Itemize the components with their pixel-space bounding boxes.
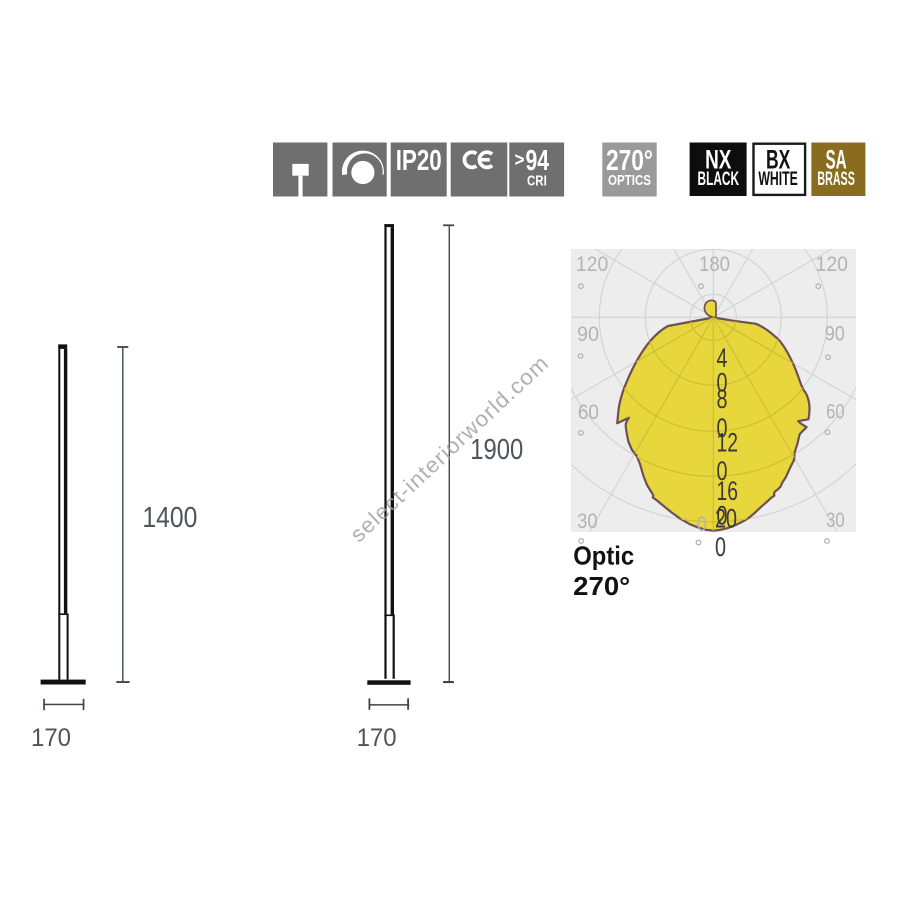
svg-text:CRI: CRI bbox=[527, 172, 547, 189]
svg-text:BRASS: BRASS bbox=[817, 168, 855, 190]
svg-text:1400: 1400 bbox=[142, 502, 197, 534]
svg-text:90: 90 bbox=[825, 323, 845, 346]
svg-text:20: 20 bbox=[715, 504, 737, 534]
svg-text:OPTICS: OPTICS bbox=[608, 173, 651, 189]
svg-text:270°: 270° bbox=[573, 571, 630, 601]
svg-text:120: 120 bbox=[816, 253, 849, 276]
svg-text:BLACK: BLACK bbox=[698, 168, 740, 190]
svg-text:170: 170 bbox=[31, 724, 71, 752]
svg-text:60: 60 bbox=[826, 401, 845, 424]
svg-text:Optic: Optic bbox=[573, 541, 634, 571]
svg-text:>: > bbox=[515, 150, 525, 171]
svg-text:0: 0 bbox=[697, 513, 707, 536]
svg-text:IP20: IP20 bbox=[396, 145, 442, 177]
svg-text:170: 170 bbox=[357, 724, 397, 752]
svg-text:120: 120 bbox=[576, 253, 609, 276]
svg-text:8: 8 bbox=[717, 384, 728, 414]
svg-text:WHITE: WHITE bbox=[758, 168, 798, 190]
svg-text:60: 60 bbox=[578, 401, 599, 424]
svg-text:0: 0 bbox=[715, 532, 726, 562]
svg-text:30: 30 bbox=[826, 509, 845, 532]
svg-text:1900: 1900 bbox=[470, 434, 523, 466]
svg-text:90: 90 bbox=[577, 323, 599, 346]
svg-text:30: 30 bbox=[577, 510, 598, 533]
svg-text:12: 12 bbox=[717, 428, 739, 458]
svg-text:180: 180 bbox=[699, 253, 730, 276]
